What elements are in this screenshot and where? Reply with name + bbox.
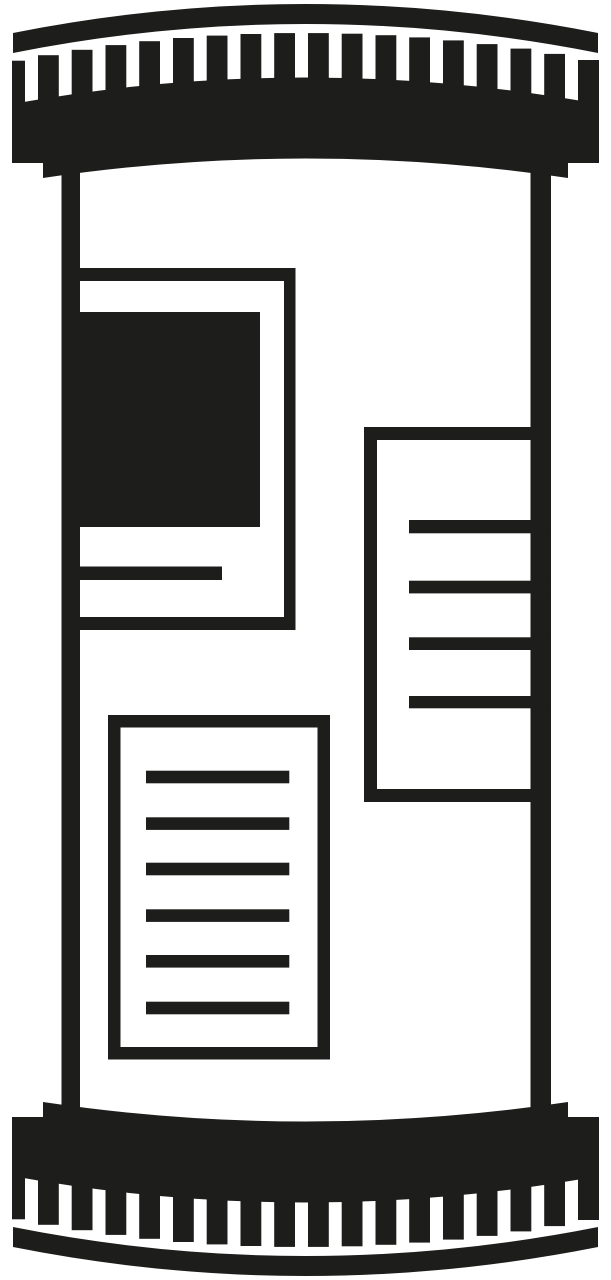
tooth (443, 40, 464, 92)
tooth (72, 1178, 93, 1230)
tooth (376, 35, 397, 87)
poster-text-line (409, 637, 551, 650)
tooth (578, 1168, 599, 1220)
tooth (173, 38, 194, 90)
tooth (409, 37, 430, 89)
tooth (578, 60, 599, 112)
tooth (106, 1183, 127, 1235)
poster-frame-bottom (62, 617, 295, 630)
tooth (207, 36, 228, 88)
tooth (241, 34, 262, 86)
poster-frame-top (62, 268, 295, 281)
poster-text-line (146, 817, 289, 830)
tooth (342, 34, 363, 86)
poster-frame-bottom (364, 789, 551, 802)
tooth (511, 49, 532, 101)
poster-text-line (146, 1002, 289, 1015)
tooth (241, 1194, 262, 1246)
poster-text-line (146, 863, 289, 876)
top-cap-rim-arc (13, 4, 598, 53)
poster-frame-left (364, 427, 377, 802)
tooth (376, 1193, 397, 1245)
poster-text-line (409, 696, 551, 708)
tooth (477, 1184, 498, 1236)
tooth (207, 1192, 228, 1244)
poster-text-line (409, 581, 551, 594)
tooth (308, 33, 329, 85)
tooth (511, 1179, 532, 1231)
poster-right (364, 427, 551, 802)
tooth (544, 1174, 565, 1226)
tooth (139, 41, 160, 93)
poster-text-line (409, 520, 551, 533)
poster-frame-right (284, 268, 296, 630)
tooth (139, 1187, 160, 1239)
tooth (72, 50, 93, 102)
advertising-column-illustration (0, 0, 611, 1280)
poster-caption-line (80, 567, 222, 581)
tooth (106, 45, 127, 97)
icon-foreground-group (12, 4, 599, 1276)
poster-photo-block (80, 312, 260, 527)
top-cap (12, 4, 599, 178)
tooth (274, 33, 295, 85)
tooth (308, 1195, 329, 1247)
poster-frame-top (364, 427, 551, 440)
tooth (173, 1190, 194, 1242)
bottom-cap-rim-arc (13, 1227, 598, 1276)
tooth (443, 1188, 464, 1240)
poster-text-line (146, 909, 289, 922)
poster-bottom-left (108, 715, 330, 1060)
advertising-column-icon (0, 0, 611, 1280)
tooth (12, 61, 25, 113)
poster-top-left (62, 268, 296, 630)
tooth (38, 55, 59, 107)
tooth (477, 44, 498, 96)
tooth (544, 54, 565, 106)
tooth (409, 1191, 430, 1243)
tooth (274, 1195, 295, 1247)
poster-text-line (146, 771, 289, 784)
bottom-cap (12, 1102, 599, 1276)
tooth (38, 1173, 59, 1225)
column-left-edge (62, 168, 81, 1112)
poster-text-line (146, 955, 289, 968)
tooth (342, 1194, 363, 1246)
tooth (12, 1167, 25, 1219)
